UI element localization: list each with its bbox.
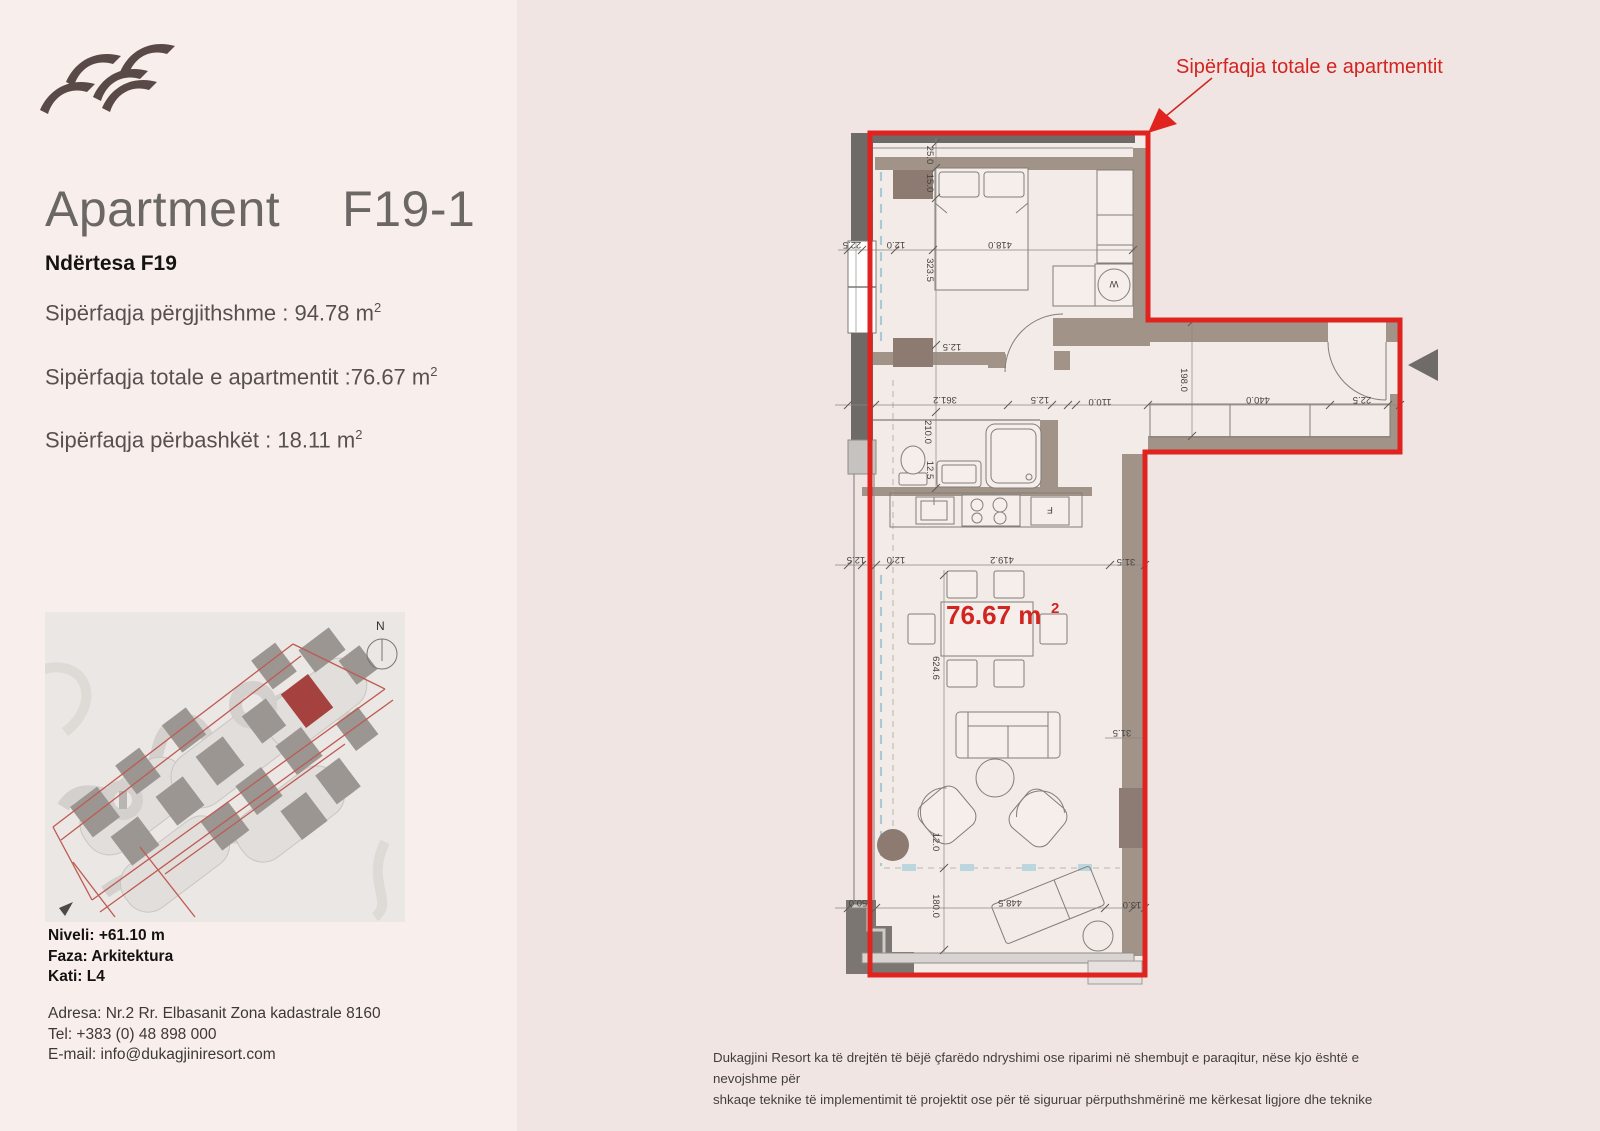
disclaimer-line-1: Dukagjini Resort ka të drejtën të bëjë ç… bbox=[713, 1047, 1393, 1089]
svg-text:13.0: 13.0 bbox=[1123, 899, 1142, 910]
svg-text:22.5: 22.5 bbox=[843, 239, 862, 250]
phone-line: Tel: +383 (0) 48 898 000 bbox=[48, 1025, 381, 1046]
svg-text:F: F bbox=[1047, 504, 1053, 515]
fridge: F bbox=[1031, 497, 1069, 525]
floor-label: Kati: L4 bbox=[48, 967, 173, 988]
shower bbox=[986, 424, 1041, 488]
apartment-plan-sheet: { "sidebar": { "title": "Apartment", "un… bbox=[0, 0, 1600, 1131]
svg-text:419.2: 419.2 bbox=[990, 554, 1014, 565]
floor-plan: W bbox=[517, 0, 1600, 1131]
bathroom-sink bbox=[937, 461, 981, 487]
disclaimer-line-2: shkaqe teknike të implementimit të proje… bbox=[713, 1089, 1393, 1110]
svg-text:12.5: 12.5 bbox=[924, 461, 935, 480]
area-total-gross: Sipërfaqja përgjithshme : 94.78 m2 bbox=[45, 300, 381, 326]
email-line: E-mail: info@dukagjiniresort.com bbox=[48, 1045, 381, 1066]
svg-text:624.6: 624.6 bbox=[930, 656, 941, 680]
building-label: Ndërtesa F19 bbox=[45, 252, 177, 276]
svg-text:448.5: 448.5 bbox=[998, 897, 1022, 908]
svg-text:210.0: 210.0 bbox=[922, 420, 933, 444]
title-apartment: Apartment bbox=[45, 181, 280, 237]
plant bbox=[877, 829, 909, 861]
toilet bbox=[899, 446, 927, 485]
disclaimer: Dukagjini Resort ka të drejtën të bëjë ç… bbox=[713, 1047, 1393, 1110]
svg-text:12.5: 12.5 bbox=[1031, 394, 1050, 405]
svg-text:12.5: 12.5 bbox=[943, 341, 962, 352]
svg-text:361.2: 361.2 bbox=[933, 394, 957, 405]
page-title: ApartmentF19-1 bbox=[45, 180, 475, 238]
svg-text:22.5: 22.5 bbox=[1353, 394, 1372, 405]
svg-text:180.0: 180.0 bbox=[930, 894, 941, 918]
project-meta: Niveli: +61.10 m Faza: Arkitektura Kati:… bbox=[48, 926, 173, 988]
svg-text:31.5: 31.5 bbox=[1113, 727, 1132, 738]
svg-text:76.67 m: 76.67 m bbox=[946, 600, 1041, 630]
washing-machine: W bbox=[1053, 264, 1133, 306]
svg-text:418.0: 418.0 bbox=[988, 239, 1012, 250]
svg-text:50.0: 50.0 bbox=[849, 897, 868, 908]
level-label: Niveli: +61.10 m bbox=[48, 926, 173, 947]
annotation-arrow-icon bbox=[1148, 78, 1212, 133]
svg-text:440.0: 440.0 bbox=[1246, 394, 1270, 405]
sidebar: ApartmentF19-1 Ndërtesa F19 Sipërfaqja p… bbox=[0, 0, 517, 1131]
area-shared: Sipërfaqja përbashkët : 18.11 m2 bbox=[45, 427, 362, 453]
entrance-arrow-icon bbox=[1408, 349, 1438, 381]
svg-text:12.5: 12.5 bbox=[847, 554, 866, 565]
contact-block: Adresa: Nr.2 Rr. Elbasanit Zona kadastra… bbox=[48, 1004, 381, 1066]
svg-text:2: 2 bbox=[1051, 600, 1059, 617]
svg-text:25.0: 25.0 bbox=[924, 146, 935, 165]
svg-text:110.0: 110.0 bbox=[1088, 396, 1111, 407]
address-line: Adresa: Nr.2 Rr. Elbasanit Zona kadastra… bbox=[48, 1004, 381, 1025]
svg-text:12.0: 12.0 bbox=[930, 833, 941, 852]
svg-text:N: N bbox=[376, 619, 385, 633]
bed bbox=[935, 168, 1028, 290]
unit-number: F19-1 bbox=[342, 181, 475, 237]
area-apartment: Sipërfaqja totale e apartmentit :76.67 m… bbox=[45, 364, 437, 390]
svg-text:12.0: 12.0 bbox=[887, 554, 906, 565]
svg-text:323.5: 323.5 bbox=[924, 258, 935, 282]
stove bbox=[962, 495, 1020, 526]
dukagjini-logo-icon bbox=[38, 36, 188, 128]
svg-text:W: W bbox=[1109, 278, 1118, 289]
svg-text:15.0: 15.0 bbox=[924, 174, 935, 193]
svg-text:198.0: 198.0 bbox=[1178, 368, 1189, 392]
svg-text:12.0: 12.0 bbox=[887, 239, 906, 250]
wardrobe bbox=[1097, 170, 1133, 263]
site-plan-map: N bbox=[45, 612, 405, 922]
svg-text:31.5: 31.5 bbox=[1117, 556, 1136, 567]
phase-label: Faza: Arkitektura bbox=[48, 947, 173, 968]
sofa bbox=[956, 712, 1060, 758]
